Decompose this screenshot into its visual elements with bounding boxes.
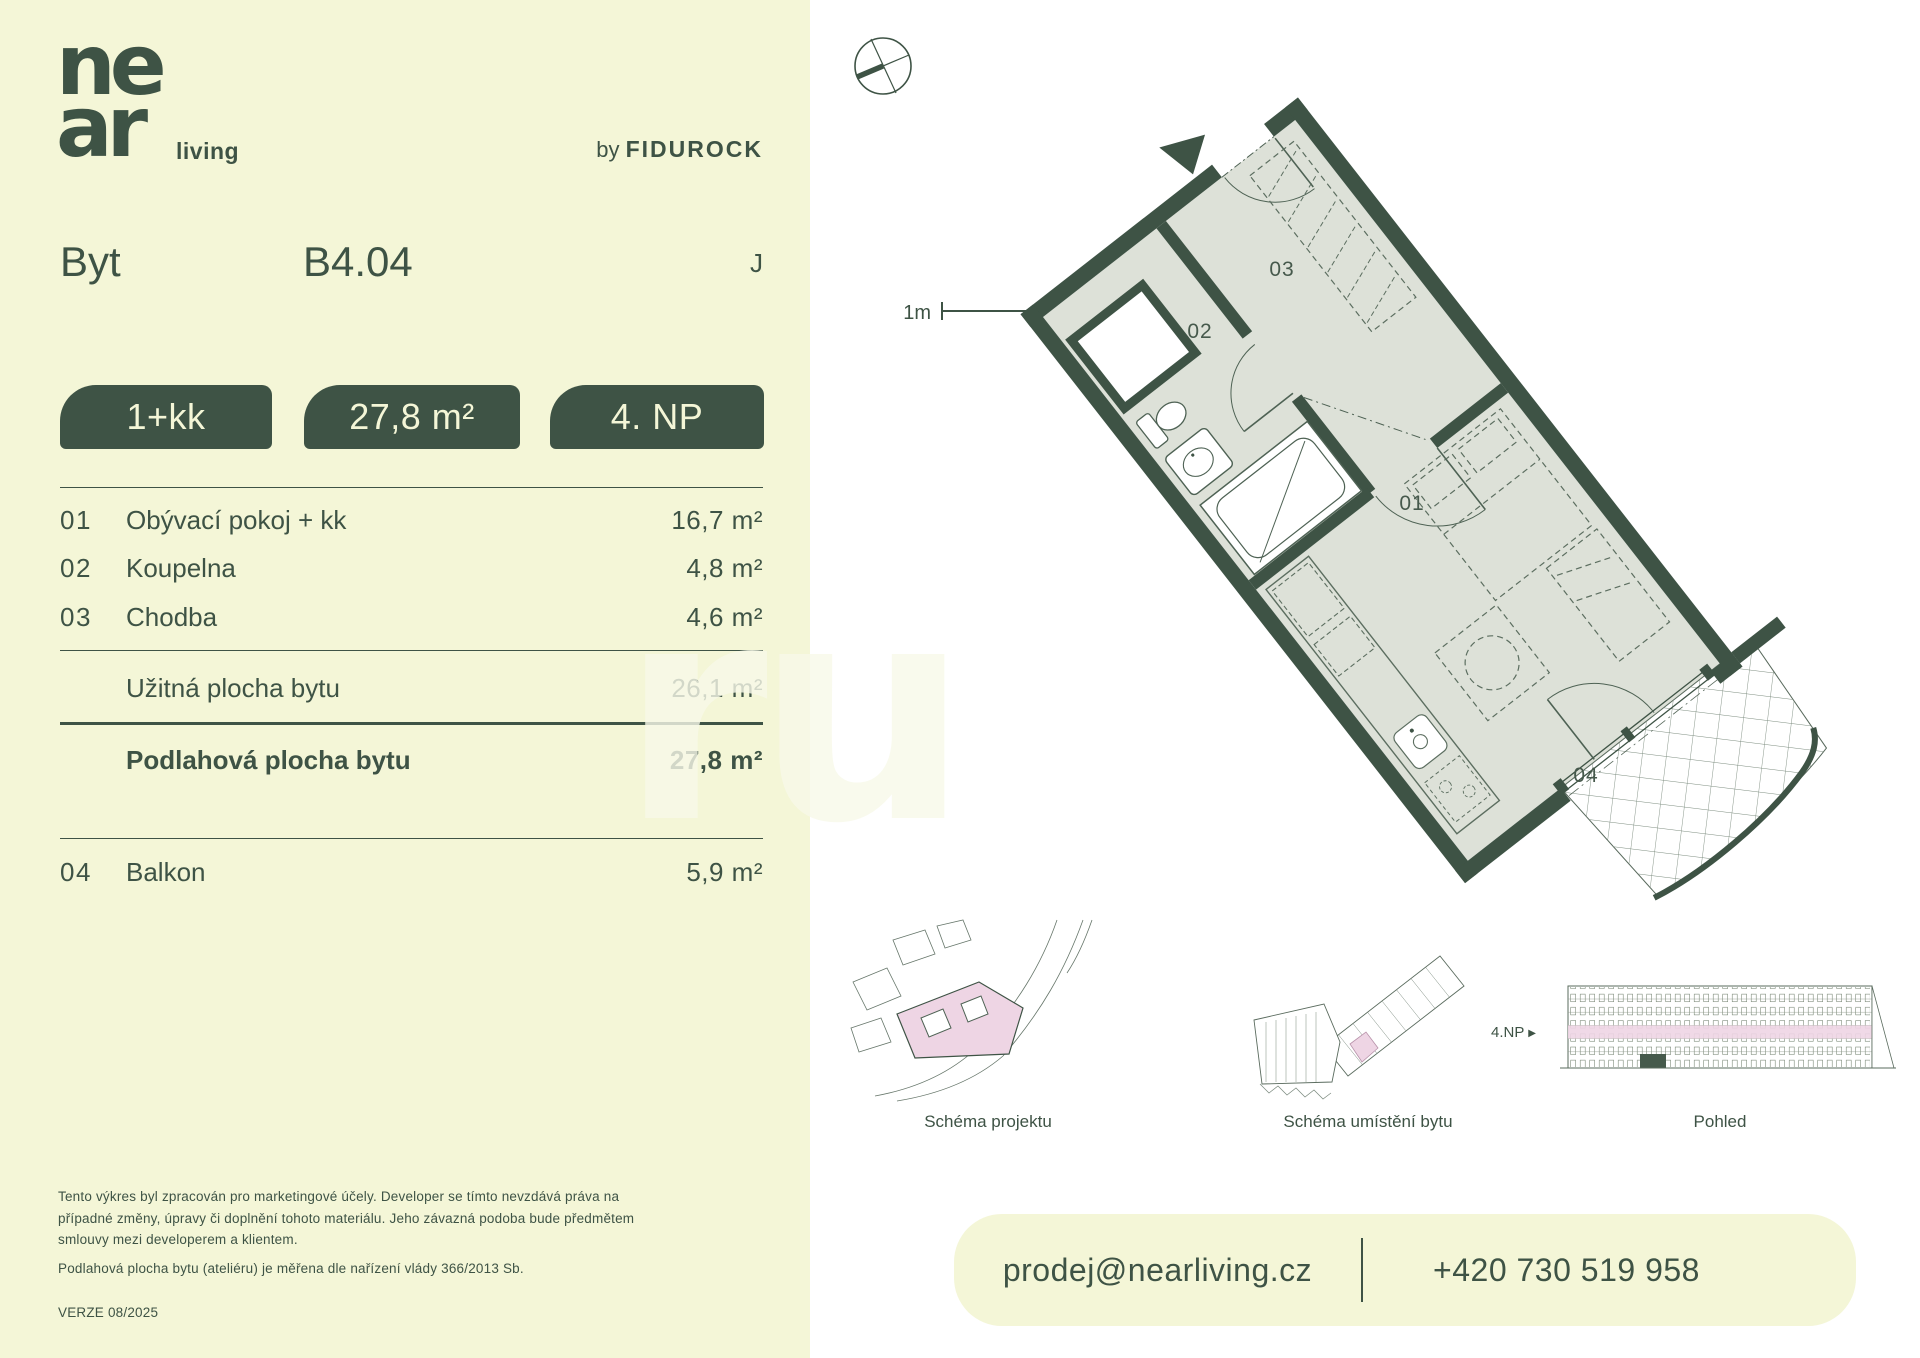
- caption-project: Schéma projektu: [868, 1112, 1108, 1132]
- summary-name: Podlahová plocha bytu: [126, 745, 670, 776]
- room-area: 4,6 m²: [686, 602, 763, 633]
- unit-label: Byt: [60, 238, 121, 286]
- badge-floor: 4. NP: [550, 385, 764, 449]
- summary-area: 26,1 m²: [671, 673, 763, 704]
- table-rule-top: [60, 487, 763, 488]
- scale-bar: 1m: [903, 302, 1028, 324]
- table-row-usable-area: Užitná plocha bytu 26,1 m²: [60, 670, 763, 706]
- room-code: 04: [60, 857, 126, 888]
- summary-area: 27,8 m²: [670, 745, 763, 776]
- near-living-logo: ne ar: [56, 34, 161, 158]
- version-label: VERZE 08/2025: [58, 1302, 658, 1324]
- schematic-unit-location: [1250, 940, 1490, 1110]
- compass-icon: [855, 38, 911, 94]
- room-code: 03: [60, 602, 126, 633]
- room-area: 16,7 m²: [671, 505, 763, 536]
- contact-email-cell: prodej@nearliving.cz: [954, 1252, 1361, 1289]
- room-name: Koupelna: [126, 553, 686, 584]
- room-name: Obývací pokoj + kk: [126, 505, 671, 536]
- label-room-01: 01: [1399, 492, 1424, 515]
- room-code: 02: [60, 553, 126, 584]
- disclaimer-2: Podlahová plocha bytu (ateliéru) je měře…: [58, 1258, 658, 1280]
- badge-area: 27,8 m²: [304, 385, 520, 449]
- label-room-03: 03: [1269, 258, 1294, 281]
- table-row-floor-area: Podlahová plocha bytu 27,8 m²: [60, 742, 763, 778]
- caption-elevation: Pohled: [1600, 1112, 1840, 1132]
- schematic-elevation: [1540, 978, 1900, 1093]
- contact-phone-cell: +420 730 519 958: [1363, 1252, 1856, 1289]
- label-room-04: 04: [1573, 764, 1598, 787]
- table-row-bathroom: 02 Koupelna 4,8 m²: [60, 550, 763, 586]
- table-row-living: 01 Obývací pokoj + kk 16,7 m²: [60, 502, 763, 538]
- apartment-outline: [992, 26, 1871, 960]
- contact-bar: prodej@nearliving.cz +420 730 519 958: [954, 1214, 1856, 1326]
- byline: by FIDUROCK: [400, 136, 763, 163]
- elevation-floor-label: 4.NP ▶: [1470, 1024, 1536, 1041]
- room-area: 5,9 m²: [686, 857, 763, 888]
- badge-layout: 1+kk: [60, 385, 272, 449]
- table-rule-thick: [60, 722, 763, 725]
- table-rule-bottom: [60, 838, 763, 839]
- room-code: 01: [60, 505, 126, 536]
- room-area: 4,8 m²: [686, 553, 763, 584]
- project-highlight: [897, 982, 1023, 1058]
- scale-label: 1m: [903, 302, 931, 324]
- disclaimer-1: Tento výkres byl zpracován pro marketing…: [58, 1186, 658, 1251]
- logo-suffix: living: [176, 138, 239, 165]
- apartment-datasheet: { "brand": { "logo_line1": "ne", "logo_l…: [0, 0, 1920, 1358]
- elevation-floor-highlight: [1568, 1025, 1872, 1038]
- right-arrow-icon: ▶: [1528, 1028, 1536, 1039]
- table-row-hall: 03 Chodba 4,6 m²: [60, 599, 763, 635]
- contact-email[interactable]: prodej@nearliving.cz: [1003, 1252, 1312, 1289]
- summary-name: Užitná plocha bytu: [126, 673, 671, 704]
- byline-prefix: by: [596, 137, 625, 162]
- table-row-balcony: 04 Balkon 5,9 m²: [60, 854, 763, 890]
- label-room-02: 02: [1187, 320, 1212, 343]
- schematic-project-map: [845, 918, 1130, 1103]
- floor-plan: 1m: [810, 0, 1920, 960]
- table-rule-mid: [60, 650, 763, 651]
- byline-brand: FIDUROCK: [626, 136, 763, 162]
- unit-type-letter: J: [400, 248, 763, 279]
- contact-phone[interactable]: +420 730 519 958: [1433, 1252, 1700, 1289]
- room-name: Balkon: [126, 857, 686, 888]
- unit-number: B4.04: [303, 238, 413, 286]
- room-name: Chodba: [126, 602, 686, 633]
- caption-unit-location: Schéma umístění bytu: [1248, 1112, 1488, 1132]
